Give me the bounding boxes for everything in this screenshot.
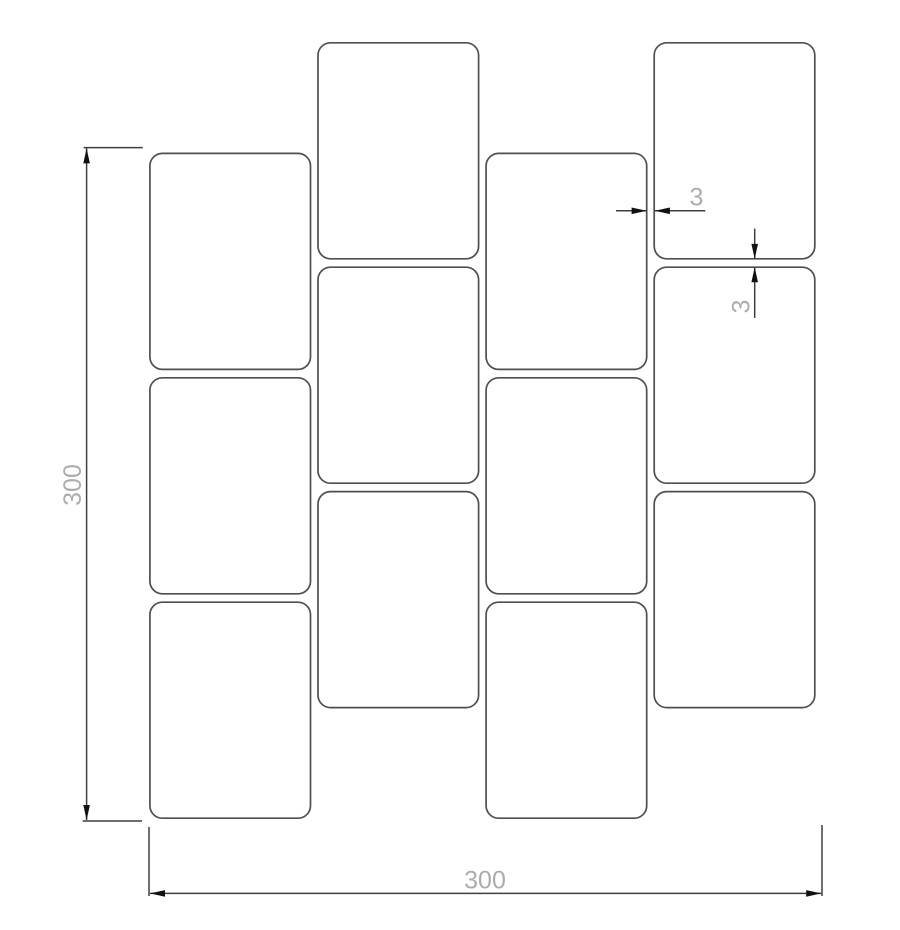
svg-text:300: 300	[464, 867, 506, 895]
svg-text:3: 3	[690, 184, 704, 212]
svg-text:3: 3	[728, 300, 756, 314]
svg-text:300: 300	[59, 464, 87, 506]
